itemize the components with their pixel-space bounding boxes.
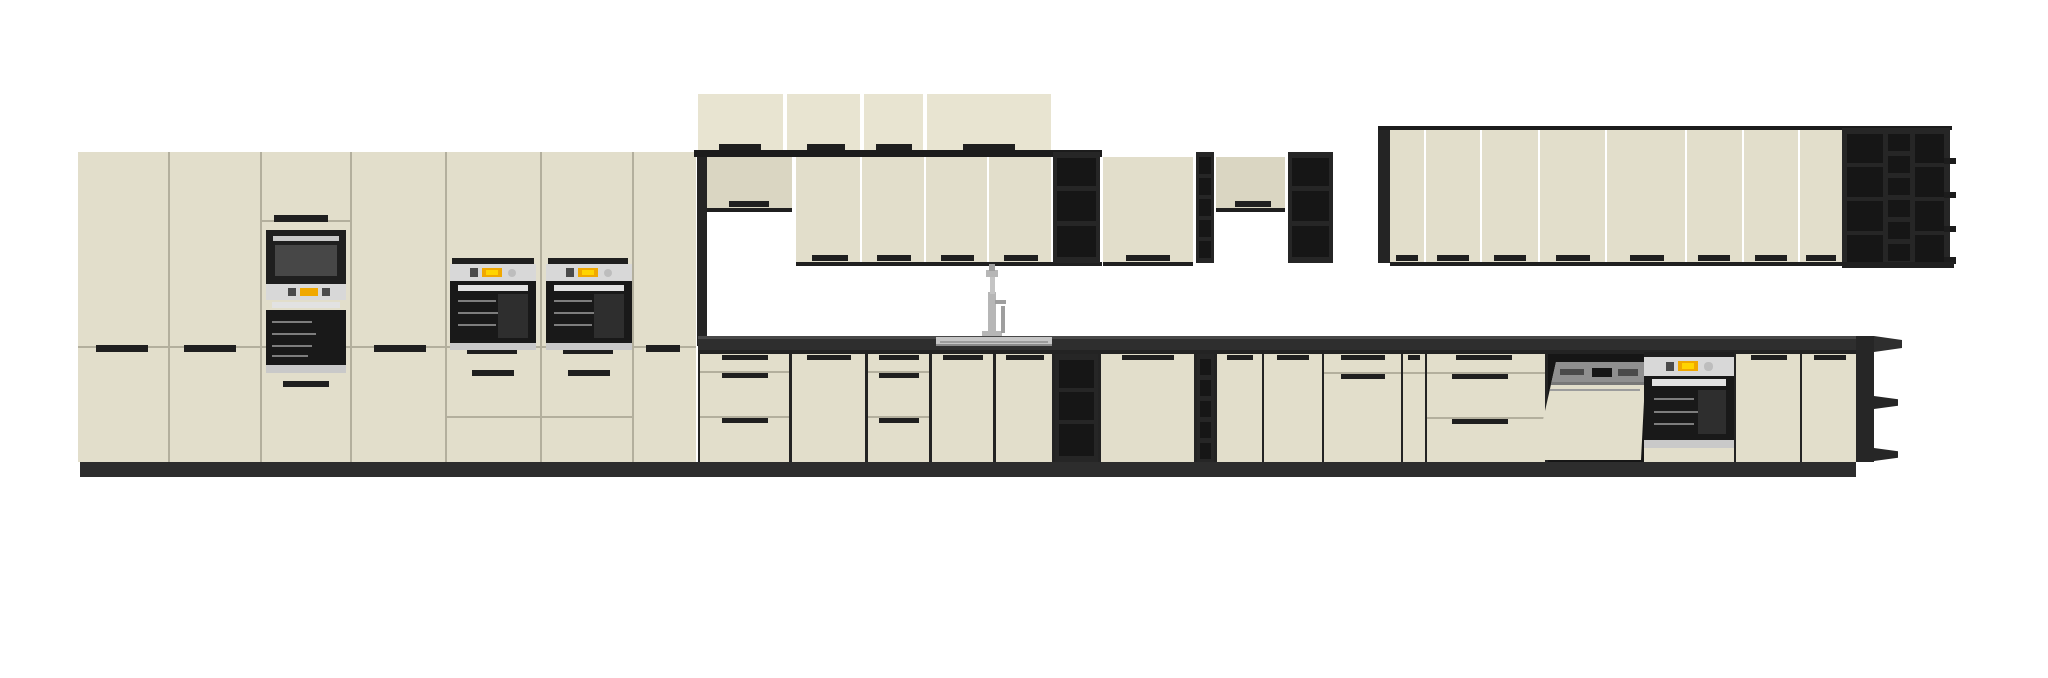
countertop-highlight [698,336,1874,339]
shelf-cell [1915,134,1944,163]
shelf-cell [1200,422,1211,438]
wall-door-handle [729,201,769,207]
right-wall-door[interactable] [1607,130,1685,262]
wall-door[interactable] [926,157,987,262]
shelf-cell [1847,167,1883,197]
drawer-handle [879,373,919,378]
microwave-trim [273,236,339,241]
wall-short-door-bottom [707,208,792,212]
end-shelf-fin-bottom [1874,448,1898,461]
shelf-cell [1847,201,1883,231]
oven-a-display-core [486,270,498,275]
drawer-handle [879,418,919,423]
wall-door-handle [812,255,848,261]
oven-rack [458,300,496,302]
grid-shelf-bottom-lip [1842,262,1954,268]
faucet-neck [990,276,995,294]
dishwasher-vent-line [1544,389,1640,391]
end-shelf-fin-top [1874,336,1902,352]
shelf-cell [1200,443,1211,459]
mw-tower-drawer-handle [274,215,328,222]
wall-top-door[interactable] [787,94,860,150]
oven-b-reflection [594,294,624,338]
shelf-cell [1915,201,1944,231]
right-wall-door[interactable] [1800,130,1842,262]
base-oven-base [1644,440,1734,448]
wall-door-handle [1806,255,1836,261]
shelf-cell [1888,222,1910,239]
shelf-cell [1057,226,1096,257]
shelf-cell [1888,134,1910,151]
shelf-fin [1944,192,1956,198]
shelf-cell [1888,156,1910,173]
base-filler-pullout[interactable] [1403,354,1425,462]
wall-door-handle [1630,255,1664,261]
wall-door-handle [1126,255,1170,261]
dishwasher-display [1592,368,1612,377]
oven-a-knob [508,269,516,277]
right-wall-door[interactable] [1390,130,1424,262]
end-shelf-fin-mid [1874,396,1898,409]
sink-base-door[interactable] [996,354,1052,462]
shelf-cell [1057,158,1096,186]
shelf-cell [1847,235,1883,262]
base-oven-plinth-strip [1644,448,1734,462]
tall-door-handle [96,345,148,352]
oven-rack [1654,411,1698,413]
wall-door-handle [877,255,911,261]
shelf-fin [1944,226,1956,232]
tall-seam [260,152,262,462]
shelf-cell [1057,191,1096,221]
right-run-bottom-edge [1390,262,1842,266]
faucet-column[interactable] [988,292,996,334]
shelf-fin [1944,158,1956,164]
oven-rack [458,324,496,326]
tall-door-handle [184,345,236,352]
oven-b-button [566,268,574,277]
oven-rack [1654,423,1694,425]
shelf-cell [1199,220,1211,237]
drawer-handle [879,355,919,360]
oven-a-drawer-handle [472,370,514,376]
shelf-cell [1199,241,1211,258]
shelf-cell [1915,167,1944,197]
drawer-handle [722,355,768,360]
shelf-cell [1200,380,1211,396]
plinth [80,462,1856,477]
shelf-cell [1200,359,1211,375]
wall-top-door[interactable] [927,94,1051,150]
wall-door[interactable] [862,157,924,262]
microwave-screen [275,245,337,276]
wall-door-handle [1437,255,1469,261]
wall-short-door-bottom [1216,208,1285,212]
wall-door[interactable] [989,157,1051,262]
shelf-cell [1888,178,1910,195]
right-wall-door[interactable] [1540,130,1605,262]
tall-seam [632,152,634,462]
base-door[interactable] [1736,354,1800,462]
base-oven-button [1666,362,1674,371]
shelf-cell [1200,401,1211,417]
shelf-cell [1059,424,1094,456]
sink-divider [940,341,1048,343]
oven-rack [554,312,596,314]
drawer-handle [1408,355,1420,360]
wall-top-door[interactable] [698,94,783,150]
right-wall-door[interactable] [1482,130,1538,262]
base-door-wide[interactable] [1101,354,1194,462]
drawer-handle [1452,419,1508,424]
shelf-cell [1888,200,1910,217]
base-drawer-door-unit[interactable] [1324,354,1401,462]
oven-a-reflection [498,294,528,338]
drawer-handle [1341,374,1385,379]
shelf-cell [1199,199,1211,216]
wall-door-handle [1556,255,1590,261]
mw-button [288,288,296,296]
kitchen-elevation-render [0,0,2048,678]
oven-rack [554,324,592,326]
drawer-handle [722,373,768,378]
drawer-handle [1751,355,1787,360]
faucet-knob [989,264,995,271]
drawer-handle [1814,355,1846,360]
faucet-cap [986,270,998,277]
wall-top-door[interactable] [864,94,923,150]
oven-a-drawer-line [445,416,540,418]
shelf-cell [1199,178,1211,195]
right-wall-door[interactable] [1744,130,1798,262]
shelf-cell [1059,392,1094,420]
dishwasher-buttons [1618,369,1638,376]
base-drawer-unit-wide[interactable] [1427,354,1545,462]
wall-door-handle [1235,201,1271,207]
oven-a-base [450,343,536,350]
mw-tower-lower-handle [283,381,329,387]
right-wall-door[interactable] [1687,130,1742,262]
base-oven-display-core [1682,363,1694,369]
wall-door-handle [1755,255,1787,261]
tower-oven-base [266,365,346,373]
base-door[interactable] [1217,354,1262,462]
oven-b-drawer-line [540,416,632,418]
wall-door-handle [1004,255,1038,261]
shelf-cell [1199,157,1211,174]
tall-door-handle [374,345,426,352]
wall-door-handle [1698,255,1730,261]
end-shelf-post [1856,336,1874,462]
sink-rim [936,344,1052,346]
oven-b-drawer-handle [568,370,610,376]
drawer-handle [1122,355,1174,360]
wall-door-handle [1396,255,1418,261]
oven-rack [458,312,500,314]
drawer-handle [1456,355,1512,360]
oven-rack [272,333,316,335]
wall-cabinet-bottom-edge [1103,262,1193,266]
drawer-line [1403,372,1425,374]
base-oven-knob [1704,362,1713,371]
drawer-handle [722,418,768,423]
oven-b-shadow [563,350,613,354]
oven-a-button [470,268,478,277]
shelf-cell [1292,226,1329,257]
shelf-cell [1847,134,1883,163]
faucet-spray-hose [1001,306,1005,333]
faucet-lever [995,300,1006,304]
mw-button [322,288,330,296]
sink-base-door[interactable] [932,354,993,462]
shelf-cell [1915,235,1944,262]
base-door[interactable] [792,354,865,462]
right-run-side-panel [1378,130,1390,263]
shelf-cell [1888,244,1910,261]
oven-b-base [546,343,632,350]
shelf-cell [1292,158,1329,186]
wall-door-handle [941,255,974,261]
tall-seam [168,152,170,462]
oven-b-knob [604,269,612,277]
oven-rack [1654,398,1694,400]
drawer-handle [807,355,851,360]
drawer-handle [943,355,983,360]
tower-oven-handle [272,302,340,308]
drawer-handle [1341,355,1385,360]
wall-door[interactable] [796,157,860,262]
drawer-handle [1277,355,1309,360]
drawer-handle [1227,355,1253,360]
wall-soffit [694,150,1102,157]
shelf-cell [1292,191,1329,221]
drawer-handle [1452,374,1508,379]
base-door[interactable] [1264,354,1322,462]
base-oven-handle [1652,379,1726,386]
wall-door-wide[interactable] [1103,157,1193,262]
wall-door-handle [1494,255,1526,261]
oven-b-handle [554,285,624,291]
oven-rack [272,345,312,347]
right-wall-door[interactable] [1426,130,1480,262]
drawer-handle [1006,355,1044,360]
oven-rack [272,355,308,357]
base-door[interactable] [1802,354,1856,462]
oven-a-shadow [467,350,517,354]
tall-seam [350,152,352,462]
oven-rack [554,300,592,302]
tall-door-handle [646,345,680,352]
oven-rack [272,321,312,323]
corner-side-panel [697,150,707,346]
mw-display [300,288,318,296]
base-oven-reflection [1698,390,1726,434]
shelf-cell [1059,360,1094,388]
oven-b-display-core [582,270,594,275]
oven-a-handle [458,285,528,291]
dishwasher-brand-mark [1560,369,1584,375]
